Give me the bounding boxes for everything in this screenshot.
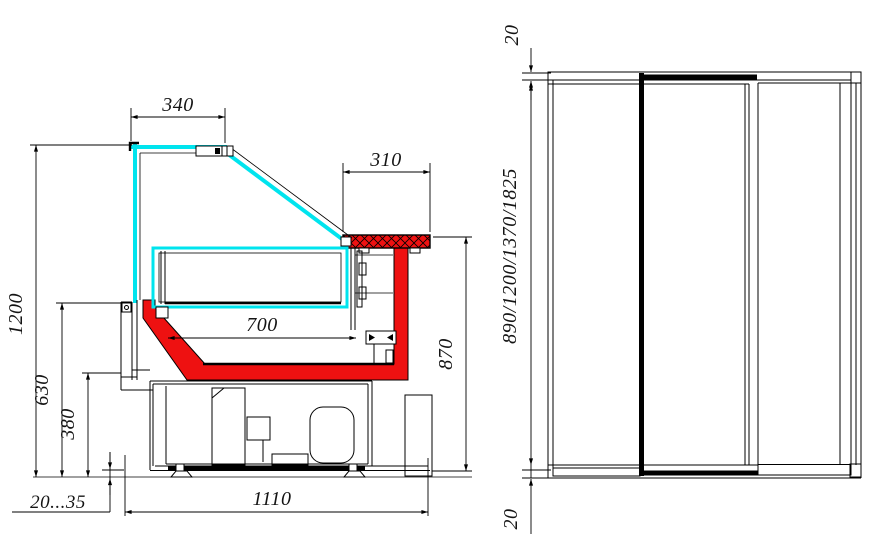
- dim-front-panel-height: 630: [31, 303, 122, 477]
- dim-label-870: 870: [435, 338, 457, 370]
- center-post: [639, 73, 644, 476]
- dim-label-630: 630: [31, 374, 53, 406]
- dim-length-variants: 890/1200/1370/1825: [499, 84, 531, 465]
- foot-bolt: [176, 464, 184, 471]
- dim-label-20-35: 20...35: [30, 492, 86, 513]
- dim-label-20-bottom: 20: [500, 509, 522, 530]
- top-panel-dark-band: [640, 75, 757, 81]
- dim-label-1200: 1200: [5, 293, 27, 335]
- dim-canopy-depth: 340: [131, 94, 225, 143]
- dim-base-height: 380: [57, 373, 121, 477]
- dim-counter-height: 870: [432, 237, 472, 471]
- foot-bolt: [349, 464, 357, 471]
- foot-flare: [171, 471, 192, 477]
- foot-flare: [344, 471, 365, 477]
- dim-label-380: 380: [57, 408, 79, 441]
- bottom-band-left: [553, 468, 640, 476]
- dim-deck-depth: 700: [168, 314, 356, 338]
- counter-top: [343, 235, 430, 253]
- dimensions-side-view: 20 890/1200/1370/1825 20: [499, 25, 551, 535]
- dim-label-340: 340: [161, 94, 194, 116]
- dim-side-bottom-thickness: 20: [500, 465, 531, 534]
- lamp-tube: [215, 148, 220, 154]
- duct-pedestal: [156, 307, 168, 318]
- side-outline: [548, 72, 861, 478]
- slanted-glass: [228, 154, 346, 242]
- bottom-right-cap: [850, 464, 861, 477]
- dim-counter-depth: 310: [343, 149, 430, 232]
- panel-bracket: [122, 303, 131, 312]
- top-right-cap: [851, 72, 861, 83]
- technical-drawing-page: 340 310 700 1200 630: [0, 0, 877, 551]
- condenser-body: [212, 388, 245, 465]
- bottom-band-right: [758, 465, 851, 476]
- canopy-lamp: [196, 146, 233, 156]
- condenser-corner: [212, 388, 224, 398]
- glass-canopy: [130, 143, 352, 301]
- deck-glass-outline: [153, 248, 347, 307]
- base-rail-band: [168, 466, 365, 470]
- compressor: [310, 407, 354, 463]
- side-view: 20 890/1200/1370/1825 20: [499, 25, 861, 535]
- display-case-drawing: 340 310 700 1200 630: [0, 0, 877, 551]
- glass-end-fitting: [341, 237, 351, 246]
- dim-label-310: 310: [369, 149, 402, 171]
- dim-side-top-thickness: 20: [501, 25, 531, 101]
- slanted-glass-outer-line: [231, 148, 352, 238]
- counter-crosshatch: [343, 235, 430, 248]
- deck-inner-outline: [159, 253, 341, 302]
- dim-label-20-top: 20: [501, 25, 523, 46]
- rear-bracket: [386, 350, 393, 363]
- control-box: [247, 417, 270, 440]
- display-deck: [153, 248, 347, 318]
- cross-section-view: 340 310 700 1200 630: [5, 94, 472, 516]
- dim-label-1110: 1110: [252, 488, 291, 510]
- bottom-dark-band: [640, 471, 758, 476]
- condenser: [212, 388, 245, 465]
- counter-fastener: [410, 248, 420, 253]
- dim-foot-adjust: 20...35: [12, 452, 124, 513]
- base-cabinet: [150, 381, 432, 477]
- drip-tray: [272, 454, 308, 465]
- back-panel-structure: [351, 248, 396, 365]
- dim-label-length-variants: 890/1200/1370/1825: [499, 168, 521, 344]
- dim-label-700: 700: [246, 314, 278, 336]
